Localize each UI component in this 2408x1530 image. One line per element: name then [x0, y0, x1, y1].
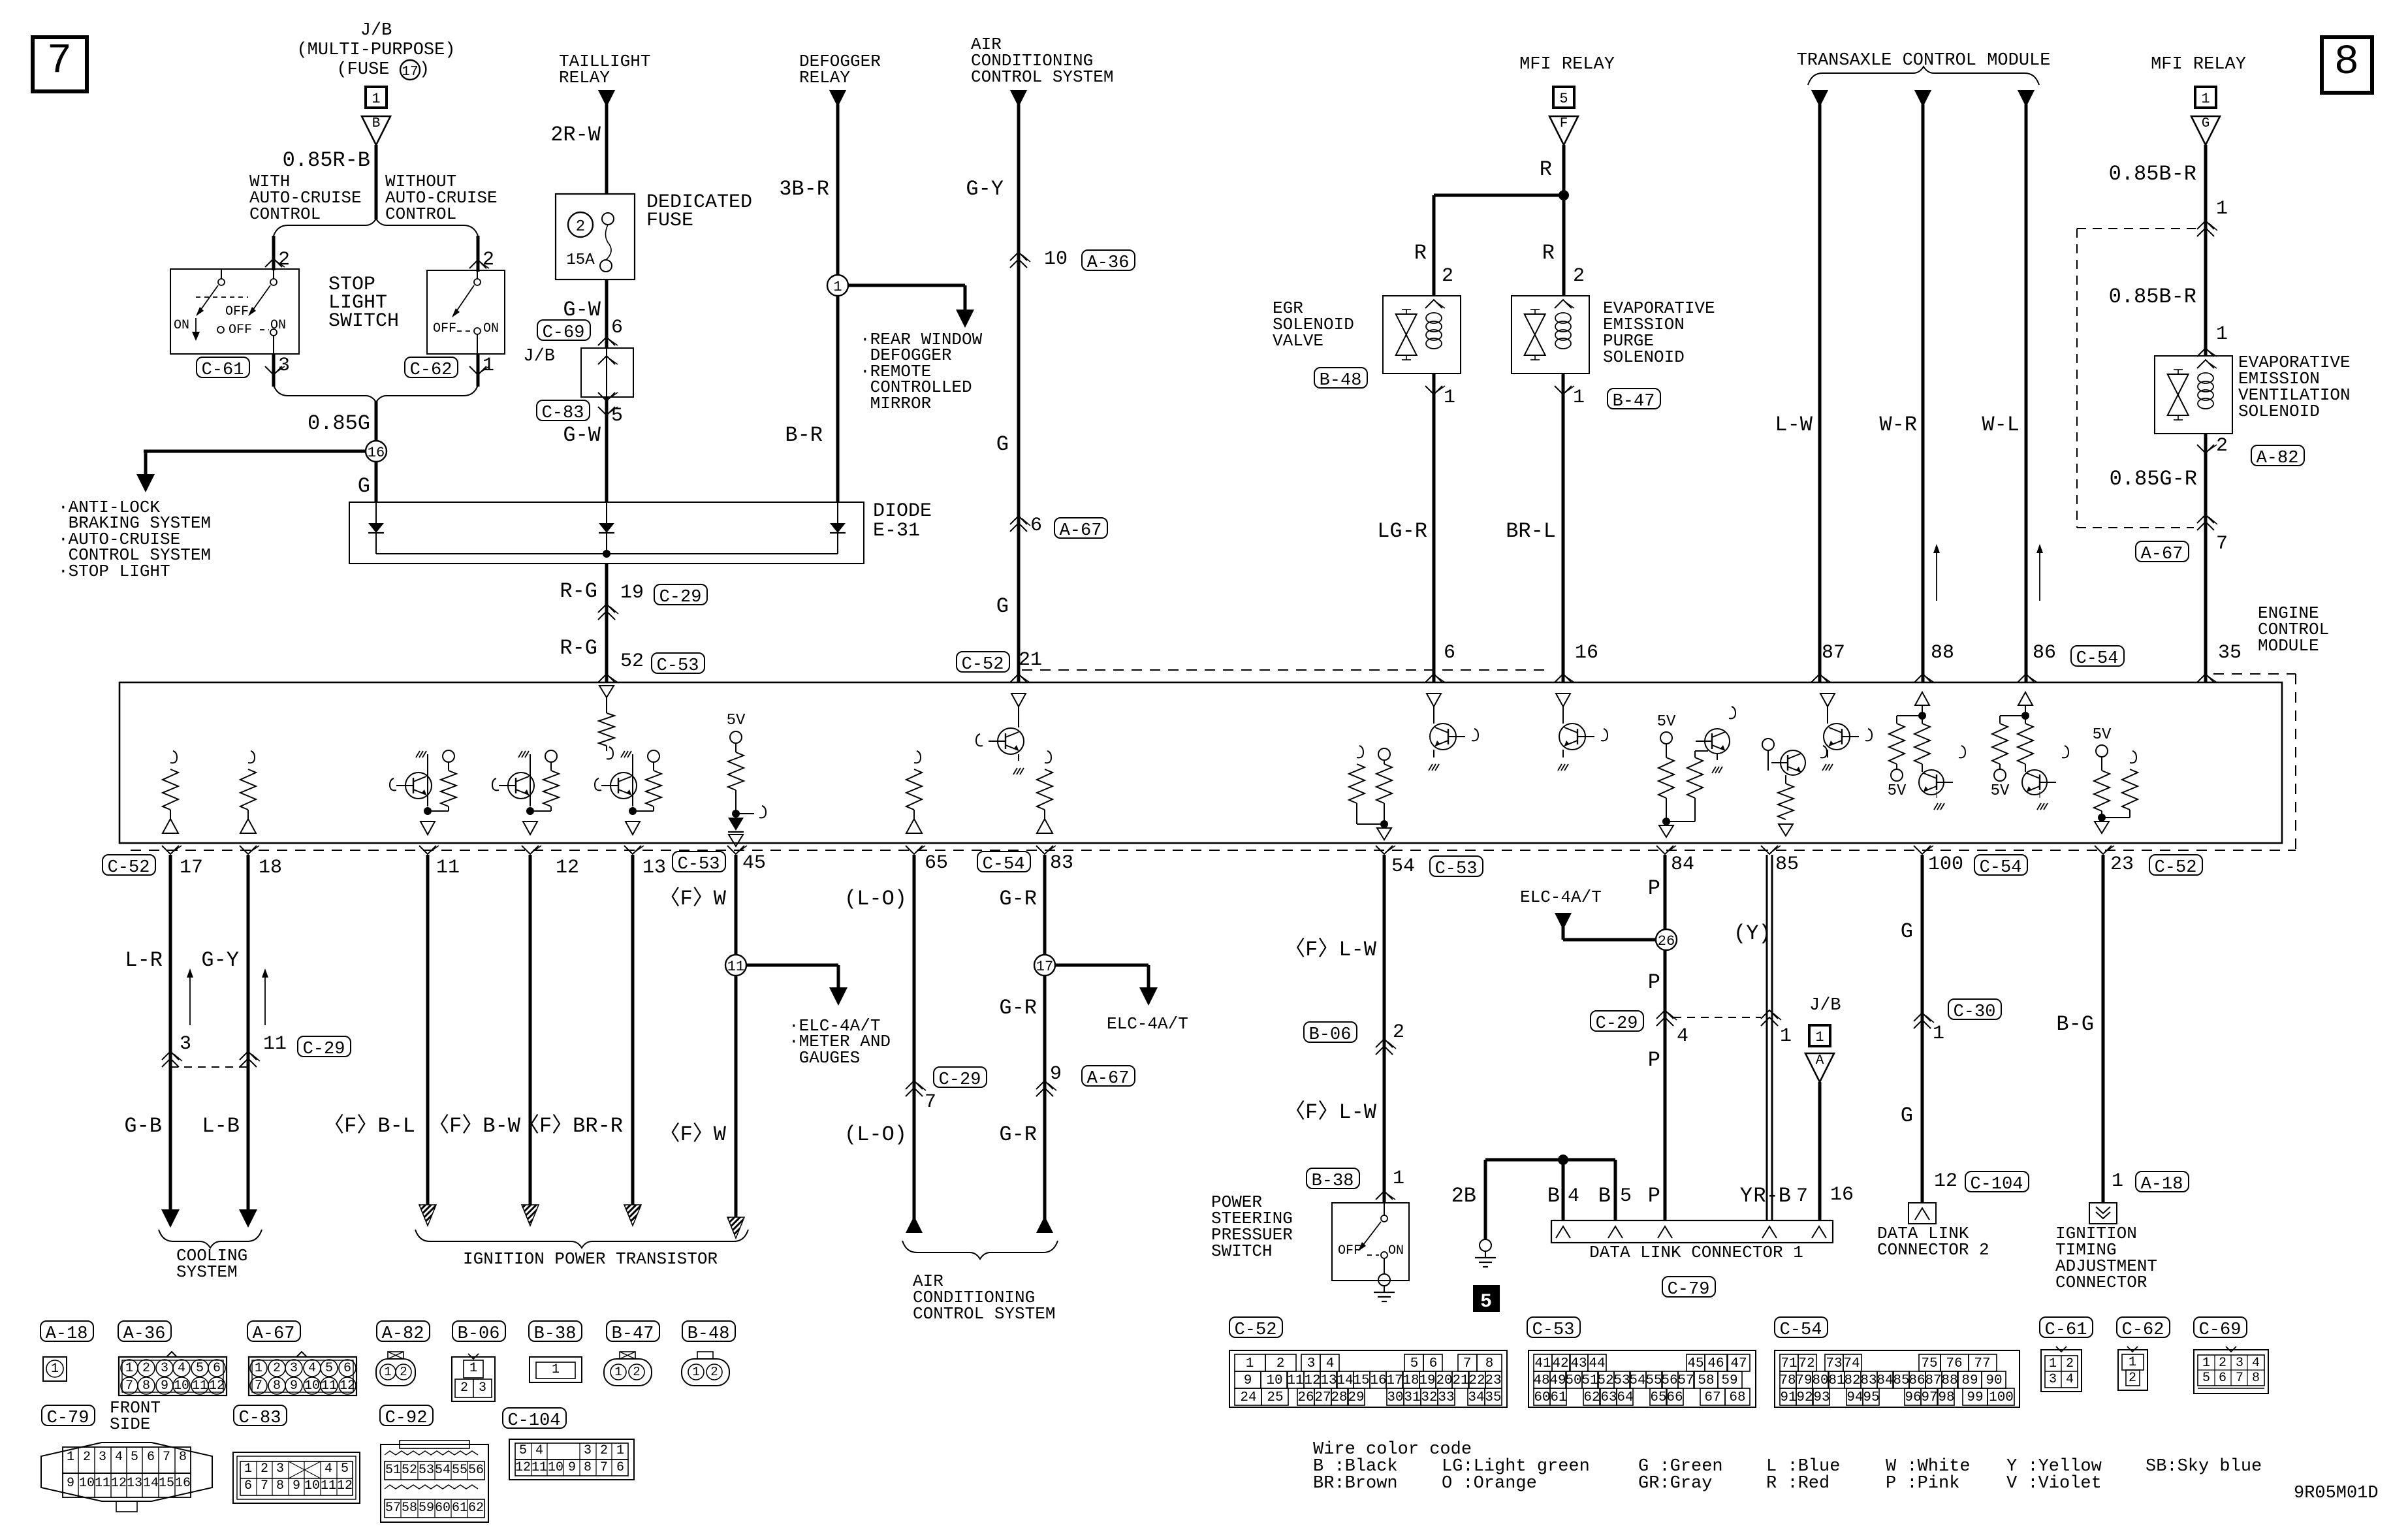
svg-text:16: 16 [1575, 642, 1598, 664]
svg-text:〈F〉BR-R: 〈F〉BR-R [518, 1114, 623, 1138]
svg-text:G-R: G-R [999, 996, 1037, 1020]
svg-text:ON: ON [483, 321, 499, 336]
svg-text:MIRROR: MIRROR [860, 394, 931, 413]
svg-text:21: 21 [1019, 649, 1042, 671]
svg-text:C-52: C-52 [1235, 1320, 1277, 1340]
svg-text:3: 3 [1307, 1356, 1316, 1371]
svg-text:12: 12 [337, 1478, 353, 1493]
svg-text:16: 16 [368, 445, 385, 461]
svg-text:67: 67 [1704, 1390, 1720, 1405]
svg-text:79: 79 [1796, 1373, 1812, 1388]
svg-text:Y: Y [1740, 1184, 1752, 1208]
svg-text:7: 7 [1796, 1185, 1808, 1207]
svg-text:MFI RELAY: MFI RELAY [2151, 55, 2246, 74]
svg-text:L-R: L-R [125, 948, 163, 972]
svg-text:17: 17 [1036, 959, 1053, 975]
svg-text:C-62: C-62 [2122, 1320, 2164, 1340]
svg-text:23: 23 [2110, 853, 2134, 876]
svg-text:62: 62 [468, 1501, 484, 1516]
svg-text:16: 16 [1370, 1373, 1386, 1388]
svg-text:9: 9 [161, 1379, 168, 1394]
svg-text:〈F〉B-W: 〈F〉B-W [428, 1114, 521, 1138]
svg-text:C-29: C-29 [659, 588, 702, 607]
svg-text:CONTROL SYSTEM: CONTROL SYSTEM [913, 1304, 1055, 1324]
svg-text:2B: 2B [1451, 1184, 1476, 1208]
svg-text:B-48: B-48 [1320, 371, 1362, 390]
svg-text:7: 7 [600, 1460, 608, 1475]
svg-text:B: B [372, 116, 381, 131]
svg-text:2: 2 [1276, 1356, 1285, 1371]
svg-text:A-82: A-82 [382, 1324, 424, 1344]
svg-text:SYSTEM: SYSTEM [176, 1262, 238, 1282]
svg-text:4: 4 [1677, 1025, 1688, 1047]
svg-text:R: R [1542, 241, 1555, 265]
svg-text:(Y): (Y) [1734, 921, 1771, 946]
svg-text:3: 3 [290, 1361, 298, 1376]
svg-text:IGNITION POWER TRANSISTOR: IGNITION POWER TRANSISTOR [463, 1249, 718, 1269]
svg-text:A-67: A-67 [253, 1324, 295, 1344]
svg-text:R :Red: R :Red [1766, 1474, 1830, 1493]
svg-text:1: 1 [67, 1450, 74, 1465]
svg-text:20: 20 [1436, 1373, 1452, 1388]
svg-text:P :Pink: P :Pink [1886, 1474, 1959, 1493]
svg-text:3: 3 [161, 1361, 168, 1376]
svg-text:V :Violet: V :Violet [2006, 1474, 2102, 1493]
svg-text:63: 63 [1600, 1390, 1617, 1405]
svg-text:W-R: W-R [1879, 413, 1917, 437]
svg-text:BR:Brown: BR:Brown [1313, 1474, 1398, 1493]
svg-text:C-61: C-61 [2045, 1320, 2087, 1340]
svg-text:6: 6 [1444, 642, 1455, 664]
svg-text:53: 53 [1613, 1373, 1630, 1388]
svg-text:6: 6 [1030, 515, 1042, 537]
svg-text:G: G [1901, 1104, 1913, 1128]
svg-text:12: 12 [209, 1379, 225, 1394]
svg-text:100: 100 [1989, 1390, 2014, 1405]
svg-text:SOLENOID: SOLENOID [1603, 347, 1685, 367]
svg-text:R-G: R-G [560, 579, 597, 603]
svg-text:A-18: A-18 [46, 1324, 88, 1344]
svg-text:26: 26 [1297, 1390, 1314, 1405]
svg-text:(FUSE: (FUSE [336, 60, 389, 80]
svg-text:C-29: C-29 [1596, 1014, 1638, 1034]
svg-text:GAUGES: GAUGES [789, 1048, 860, 1068]
svg-text:G-W: G-W [563, 298, 601, 322]
svg-text:C-29: C-29 [303, 1040, 345, 1059]
svg-text:59: 59 [419, 1501, 434, 1516]
svg-text:96: 96 [1905, 1390, 1921, 1405]
svg-text:59: 59 [1721, 1373, 1737, 1388]
svg-text:CONNECTOR: CONNECTOR [2055, 1273, 2147, 1292]
svg-text:〈F〉W: 〈F〉W [659, 887, 727, 911]
svg-text:9: 9 [568, 1460, 576, 1475]
svg-text:8: 8 [584, 1460, 592, 1475]
svg-text:75: 75 [1921, 1356, 1937, 1371]
svg-text:10: 10 [304, 1379, 320, 1394]
svg-text:E-31: E-31 [873, 520, 920, 542]
svg-text:A-36: A-36 [1087, 253, 1130, 273]
svg-text:5: 5 [2202, 1371, 2210, 1386]
svg-text:19: 19 [620, 582, 644, 604]
svg-text:94: 94 [1846, 1390, 1863, 1405]
svg-text:R: R [1540, 157, 1552, 182]
svg-text:C-53: C-53 [1532, 1320, 1575, 1340]
svg-text:84: 84 [1671, 853, 1694, 876]
svg-text:88: 88 [1931, 642, 1954, 664]
svg-text:11: 11 [321, 1379, 337, 1394]
svg-text:32: 32 [1421, 1390, 1437, 1405]
svg-text:17: 17 [1386, 1373, 1402, 1388]
svg-text:18: 18 [1402, 1373, 1419, 1388]
svg-text:24: 24 [1240, 1390, 1256, 1405]
svg-text:88: 88 [1941, 1373, 1957, 1388]
svg-text:44: 44 [1589, 1356, 1605, 1371]
svg-text:8: 8 [276, 1478, 284, 1493]
svg-text:11: 11 [321, 1478, 336, 1493]
svg-text:60: 60 [1534, 1390, 1550, 1405]
svg-text:23: 23 [1485, 1373, 1501, 1388]
svg-text:1: 1 [2216, 198, 2228, 220]
svg-text:2: 2 [273, 1361, 281, 1376]
svg-text:49: 49 [1549, 1373, 1566, 1388]
svg-text:8: 8 [1485, 1356, 1494, 1371]
svg-text:C-79: C-79 [47, 1409, 89, 1428]
svg-text:4: 4 [178, 1361, 185, 1376]
svg-text:10: 10 [174, 1379, 189, 1394]
svg-text:BR-L: BR-L [1506, 519, 1556, 543]
svg-text:A: A [1816, 1053, 1824, 1068]
svg-text:A-82: A-82 [2257, 449, 2299, 468]
svg-text:90: 90 [1986, 1373, 2002, 1388]
svg-text:46: 46 [1707, 1356, 1724, 1371]
svg-text:C-54: C-54 [983, 855, 1025, 874]
svg-text:2: 2 [1442, 265, 1453, 287]
svg-text:2: 2 [1393, 1021, 1404, 1044]
svg-text:DIODE: DIODE [873, 500, 932, 522]
svg-text:5V: 5V [1888, 782, 1907, 800]
svg-text:6: 6 [2219, 1371, 2226, 1386]
svg-text:OFF: OFF [225, 304, 249, 319]
svg-text:B: B [1598, 1184, 1611, 1208]
svg-text:12: 12 [556, 857, 579, 879]
svg-text:97: 97 [1921, 1390, 1937, 1405]
svg-text:6: 6 [213, 1361, 221, 1376]
svg-text:G: G [2202, 116, 2210, 131]
svg-text:7: 7 [2236, 1371, 2243, 1386]
svg-text:10: 10 [79, 1476, 95, 1491]
svg-text:ELC-4A/T: ELC-4A/T [1107, 1014, 1188, 1034]
svg-text:48: 48 [1533, 1373, 1549, 1388]
svg-text:86: 86 [2033, 642, 2056, 664]
svg-text:34: 34 [1468, 1390, 1484, 1405]
svg-text:C-29: C-29 [939, 1070, 981, 1090]
svg-text:A-67: A-67 [1060, 521, 1102, 541]
svg-text:6: 6 [1429, 1356, 1438, 1371]
svg-text:68: 68 [1729, 1390, 1745, 1405]
svg-text:8: 8 [179, 1450, 187, 1465]
svg-text:11: 11 [95, 1476, 110, 1491]
svg-text:54: 54 [1629, 1373, 1645, 1388]
svg-text:10: 10 [304, 1478, 320, 1493]
svg-text:11: 11 [192, 1379, 208, 1394]
svg-text:45: 45 [1687, 1356, 1703, 1371]
svg-text:1: 1 [2112, 1170, 2123, 1192]
svg-text:5V: 5V [727, 712, 746, 729]
svg-text:51: 51 [1581, 1373, 1598, 1388]
svg-text:85: 85 [1893, 1373, 1909, 1388]
svg-text:B-06: B-06 [458, 1324, 500, 1344]
svg-text:77: 77 [1974, 1356, 1990, 1371]
svg-text:9: 9 [293, 1478, 300, 1493]
svg-text:56: 56 [1661, 1373, 1677, 1388]
svg-text:C-52: C-52 [108, 858, 150, 878]
svg-text:1: 1 [1780, 1025, 1792, 1047]
svg-text:G: G [996, 432, 1009, 456]
svg-text:1: 1 [51, 1362, 59, 1377]
svg-text:6: 6 [343, 1361, 351, 1376]
svg-text:61: 61 [1550, 1390, 1566, 1405]
svg-text:47: 47 [1730, 1356, 1747, 1371]
svg-text:ON: ON [270, 318, 286, 333]
svg-text:G-R: G-R [999, 887, 1037, 911]
svg-text:G-B: G-B [124, 1114, 162, 1138]
svg-text:76: 76 [1946, 1356, 1962, 1371]
svg-text:2: 2 [142, 1361, 150, 1376]
svg-text:12: 12 [111, 1476, 127, 1491]
svg-text:5: 5 [341, 1461, 349, 1476]
svg-text:CONTROL: CONTROL [249, 204, 321, 224]
svg-text:4: 4 [2066, 1372, 2074, 1387]
svg-text:F: F [1560, 116, 1568, 131]
svg-text:31: 31 [1404, 1390, 1420, 1405]
svg-text:95: 95 [1863, 1390, 1879, 1405]
svg-text:1: 1 [1815, 1029, 1824, 1045]
svg-text:3: 3 [479, 1380, 486, 1395]
svg-text:B-R: B-R [785, 423, 823, 447]
svg-text:8: 8 [273, 1379, 281, 1394]
svg-text:17: 17 [180, 857, 203, 879]
svg-text:R: R [1414, 241, 1427, 265]
svg-text:6: 6 [147, 1450, 155, 1465]
svg-text:10: 10 [1266, 1373, 1282, 1388]
svg-text:C-53: C-53 [678, 855, 720, 874]
svg-text:R-B: R-B [1753, 1184, 1791, 1208]
svg-text:OFF: OFF [433, 321, 456, 336]
svg-text:26: 26 [1658, 933, 1675, 949]
svg-text:C-104: C-104 [1970, 1175, 2023, 1194]
svg-text:55: 55 [1645, 1373, 1662, 1388]
svg-text:50: 50 [1565, 1373, 1581, 1388]
svg-text:SOLENOID: SOLENOID [2238, 402, 2320, 421]
svg-text:98: 98 [1938, 1390, 1954, 1405]
svg-text:5V: 5V [1657, 713, 1676, 731]
svg-text:30: 30 [1387, 1390, 1403, 1405]
svg-text:B: B [1547, 1184, 1560, 1208]
svg-text:5: 5 [325, 1361, 333, 1376]
svg-text:28: 28 [1331, 1390, 1347, 1405]
svg-text:22: 22 [1468, 1373, 1485, 1388]
svg-text:B-38: B-38 [534, 1324, 577, 1344]
svg-text:A-67: A-67 [1087, 1069, 1130, 1089]
svg-text:92: 92 [1796, 1390, 1813, 1405]
svg-text:5: 5 [196, 1361, 204, 1376]
svg-text:2: 2 [2129, 1371, 2136, 1386]
svg-text:W-L: W-L [1982, 413, 2020, 437]
svg-text:21: 21 [1452, 1373, 1468, 1388]
svg-text:61: 61 [452, 1501, 467, 1516]
svg-text:1: 1 [552, 1362, 560, 1377]
svg-text:83: 83 [1050, 852, 1073, 874]
svg-text:P: P [1648, 1048, 1660, 1072]
svg-text:L-B: L-B [202, 1114, 240, 1138]
svg-text:MFI RELAY: MFI RELAY [1519, 55, 1615, 74]
svg-text:(L-O): (L-O) [844, 1123, 907, 1147]
svg-text:12: 12 [1934, 1170, 1957, 1192]
svg-text:52: 52 [402, 1463, 417, 1478]
svg-text:MODULE: MODULE [2258, 636, 2319, 656]
svg-text:74: 74 [1843, 1356, 1860, 1371]
svg-text:16: 16 [1830, 1184, 1854, 1206]
svg-text:83: 83 [1860, 1373, 1877, 1388]
svg-text:52: 52 [1597, 1373, 1613, 1388]
svg-text:·STOP LIGHT: ·STOP LIGHT [58, 562, 170, 581]
svg-text:33: 33 [1438, 1390, 1454, 1405]
svg-text:41: 41 [1534, 1356, 1551, 1371]
svg-text:C-54: C-54 [2076, 649, 2119, 669]
svg-text:〈F〉W: 〈F〉W [659, 1123, 727, 1147]
svg-text:0.85R-B: 0.85R-B [283, 148, 370, 172]
svg-text:52: 52 [620, 650, 644, 673]
svg-text:7: 7 [925, 1091, 936, 1113]
svg-text:ELC-4A/T: ELC-4A/T [1520, 887, 1602, 907]
svg-text:1: 1 [2216, 323, 2228, 345]
svg-text:G: G [1901, 919, 1913, 944]
svg-text:9R05M01D: 9R05M01D [2294, 1484, 2379, 1503]
svg-text:62: 62 [1583, 1390, 1600, 1405]
svg-text:0.85G-R: 0.85G-R [2110, 467, 2197, 491]
svg-text:O :Orange: O :Orange [1442, 1474, 1537, 1493]
svg-text:1: 1 [255, 1361, 262, 1376]
svg-text:42: 42 [1552, 1356, 1568, 1371]
svg-text:B-06: B-06 [1309, 1025, 1352, 1045]
svg-text:45: 45 [742, 852, 766, 874]
svg-text:27: 27 [1314, 1390, 1331, 1405]
svg-text:5: 5 [1410, 1356, 1419, 1371]
svg-text:7: 7 [125, 1379, 133, 1394]
svg-text:J/B: J/B [360, 21, 392, 40]
svg-text:2: 2 [1573, 265, 1585, 287]
svg-text:9: 9 [290, 1379, 298, 1394]
svg-text:8: 8 [2252, 1371, 2260, 1386]
svg-text:11: 11 [531, 1460, 547, 1475]
svg-text:B-47: B-47 [612, 1324, 654, 1344]
svg-text:86: 86 [1909, 1373, 1925, 1388]
svg-text:2: 2 [278, 249, 290, 271]
svg-text:(L-O): (L-O) [844, 887, 907, 911]
svg-text:80: 80 [1812, 1373, 1828, 1388]
svg-text:〈F〉L-W: 〈F〉L-W [1284, 1100, 1377, 1124]
svg-text:11: 11 [436, 857, 460, 879]
svg-text:1: 1 [1393, 1168, 1404, 1190]
svg-text:4: 4 [1326, 1356, 1335, 1371]
svg-text:72: 72 [1798, 1356, 1814, 1371]
svg-text:35: 35 [2218, 642, 2242, 664]
svg-text:3: 3 [180, 1033, 191, 1055]
svg-text:10: 10 [548, 1460, 563, 1475]
svg-text:J/B: J/B [523, 347, 555, 366]
svg-text:3B-R: 3B-R [779, 177, 829, 201]
svg-text:87: 87 [1822, 642, 1845, 664]
svg-text:12: 12 [1304, 1373, 1320, 1388]
svg-text:0.85G: 0.85G [308, 411, 370, 436]
svg-text:2: 2 [633, 1365, 640, 1379]
svg-text:12: 12 [515, 1460, 531, 1475]
svg-text:0.85B-R: 0.85B-R [2109, 285, 2196, 309]
svg-text:6: 6 [611, 317, 623, 339]
svg-text:2: 2 [600, 1443, 608, 1458]
svg-text:78: 78 [1779, 1373, 1796, 1388]
svg-text:29: 29 [1348, 1390, 1364, 1405]
svg-text:C-92: C-92 [385, 1409, 428, 1428]
svg-text:5V: 5V [1991, 782, 2010, 800]
svg-text:13: 13 [1320, 1373, 1337, 1388]
svg-text:9: 9 [1244, 1373, 1252, 1388]
svg-text:10: 10 [1044, 248, 1068, 270]
svg-text:2R-W: 2R-W [550, 123, 601, 147]
svg-text:64: 64 [1617, 1390, 1633, 1405]
svg-text:1: 1 [384, 1365, 391, 1379]
svg-text:6: 6 [244, 1478, 252, 1493]
svg-text:1: 1 [2129, 1355, 2136, 1370]
svg-text:1: 1 [616, 1443, 624, 1458]
svg-text:DATA LINK CONNECTOR 1: DATA LINK CONNECTOR 1 [1589, 1243, 1803, 1262]
svg-text:4: 4 [1568, 1185, 1579, 1207]
svg-text:R-G: R-G [560, 636, 597, 660]
svg-text:A-36: A-36 [123, 1324, 166, 1344]
svg-text:4: 4 [2252, 1356, 2260, 1371]
svg-text:82: 82 [1844, 1373, 1860, 1388]
svg-text:SWITCH: SWITCH [328, 310, 399, 332]
svg-text:1: 1 [614, 1365, 622, 1379]
svg-text:3: 3 [278, 355, 290, 377]
svg-text:13: 13 [127, 1476, 142, 1491]
svg-text:VALVE: VALVE [1273, 331, 1323, 351]
svg-text:11: 11 [1287, 1373, 1303, 1388]
svg-text:1: 1 [469, 1361, 477, 1376]
svg-text:G-Y: G-Y [201, 948, 239, 972]
svg-text:60: 60 [435, 1501, 451, 1516]
svg-text:65: 65 [1650, 1390, 1666, 1405]
svg-text:FUSE: FUSE [646, 210, 693, 232]
svg-text:89: 89 [1961, 1373, 1978, 1388]
svg-text:C-54: C-54 [1780, 1320, 1822, 1340]
svg-text:25: 25 [1267, 1390, 1283, 1405]
svg-text:G-Y: G-Y [966, 177, 1004, 201]
svg-text:ON: ON [1388, 1243, 1404, 1258]
svg-text:ON: ON [174, 318, 189, 333]
svg-text:3: 3 [584, 1443, 592, 1458]
svg-text:B-48: B-48 [688, 1324, 730, 1344]
svg-text:71: 71 [1781, 1356, 1797, 1371]
svg-text:35: 35 [1485, 1390, 1501, 1405]
svg-text:C-69: C-69 [2199, 1320, 2242, 1340]
svg-text:4: 4 [325, 1461, 332, 1476]
svg-text:3: 3 [2049, 1372, 2057, 1387]
svg-text:4: 4 [535, 1443, 543, 1458]
svg-text:66: 66 [1666, 1390, 1683, 1405]
svg-text:11: 11 [727, 959, 744, 975]
svg-text:RELAY: RELAY [559, 68, 610, 88]
